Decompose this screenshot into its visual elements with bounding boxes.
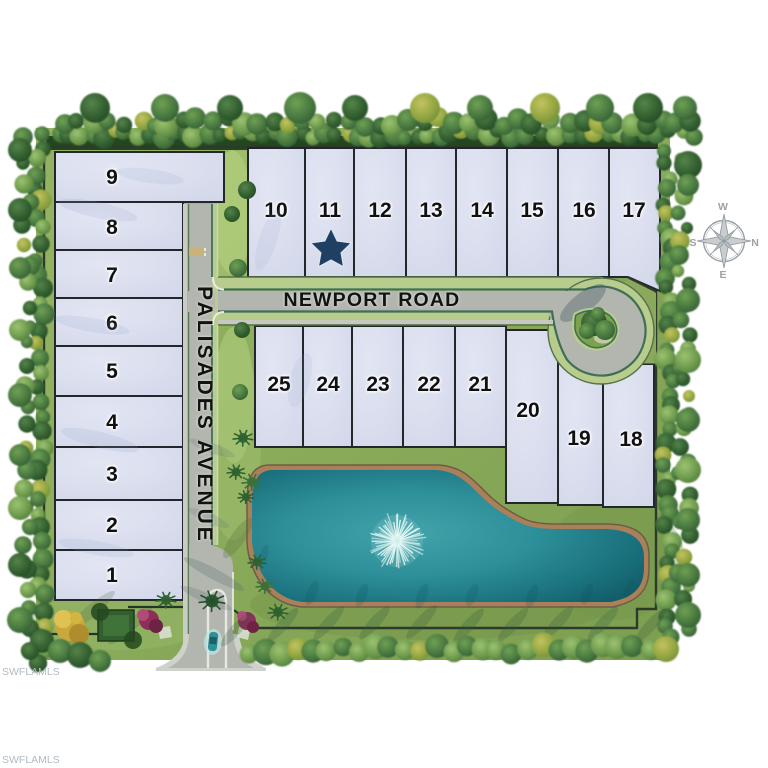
svg-text:16: 16	[572, 199, 595, 222]
svg-text:20: 20	[516, 399, 539, 422]
svg-text:25: 25	[267, 373, 291, 396]
svg-text:18: 18	[619, 428, 643, 451]
svg-text:NEWPORT ROAD: NEWPORT ROAD	[284, 289, 461, 311]
svg-text:PALISADES AVENUE: PALISADES AVENUE	[193, 286, 216, 544]
svg-text:17: 17	[622, 199, 645, 222]
svg-text:23: 23	[366, 373, 389, 396]
svg-text:13: 13	[419, 199, 442, 222]
svg-text:11: 11	[319, 199, 342, 222]
svg-text:22: 22	[417, 373, 440, 396]
svg-text:1: 1	[106, 564, 118, 587]
svg-text:S: S	[689, 237, 696, 249]
svg-text:14: 14	[470, 199, 494, 222]
svg-text:12: 12	[368, 199, 391, 222]
svg-text:9: 9	[106, 166, 118, 189]
svg-text:2: 2	[106, 514, 118, 537]
svg-text:15: 15	[520, 199, 544, 222]
svg-text:21: 21	[468, 373, 492, 396]
svg-text:3: 3	[106, 463, 118, 486]
svg-text:E: E	[719, 269, 726, 281]
svg-text:W: W	[718, 201, 728, 213]
svg-text:SWFLAMLS: SWFLAMLS	[2, 666, 60, 678]
svg-text:N: N	[751, 237, 759, 249]
svg-text:5: 5	[106, 360, 118, 383]
svg-text:SWFLAMLS: SWFLAMLS	[2, 754, 60, 766]
svg-text:4: 4	[106, 411, 118, 434]
svg-text:24: 24	[316, 373, 340, 396]
svg-text:7: 7	[106, 264, 118, 287]
svg-text:19: 19	[567, 427, 590, 450]
